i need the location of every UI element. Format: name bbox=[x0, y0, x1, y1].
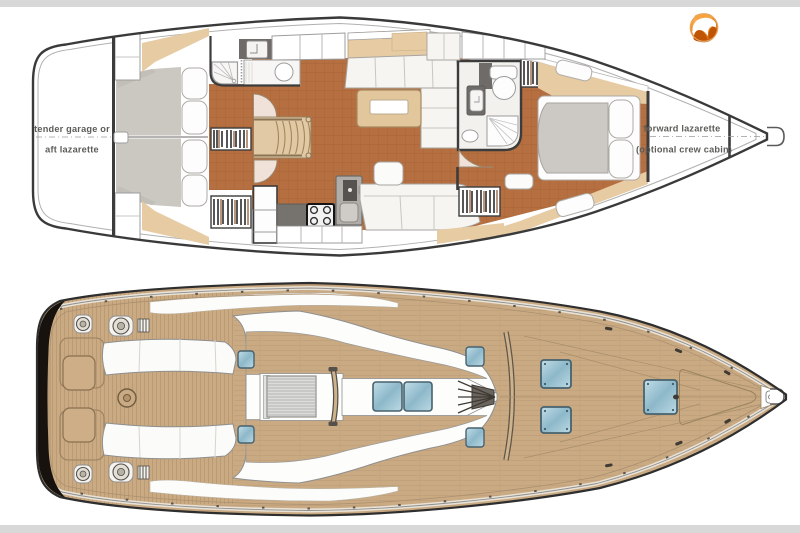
svg-text:tender garage or: tender garage or bbox=[34, 124, 110, 134]
svg-text:(optional crew cabin): (optional crew cabin) bbox=[636, 145, 732, 155]
svg-text:aft lazarette: aft lazarette bbox=[45, 145, 99, 155]
svg-text:forward lazarette: forward lazarette bbox=[644, 124, 721, 134]
